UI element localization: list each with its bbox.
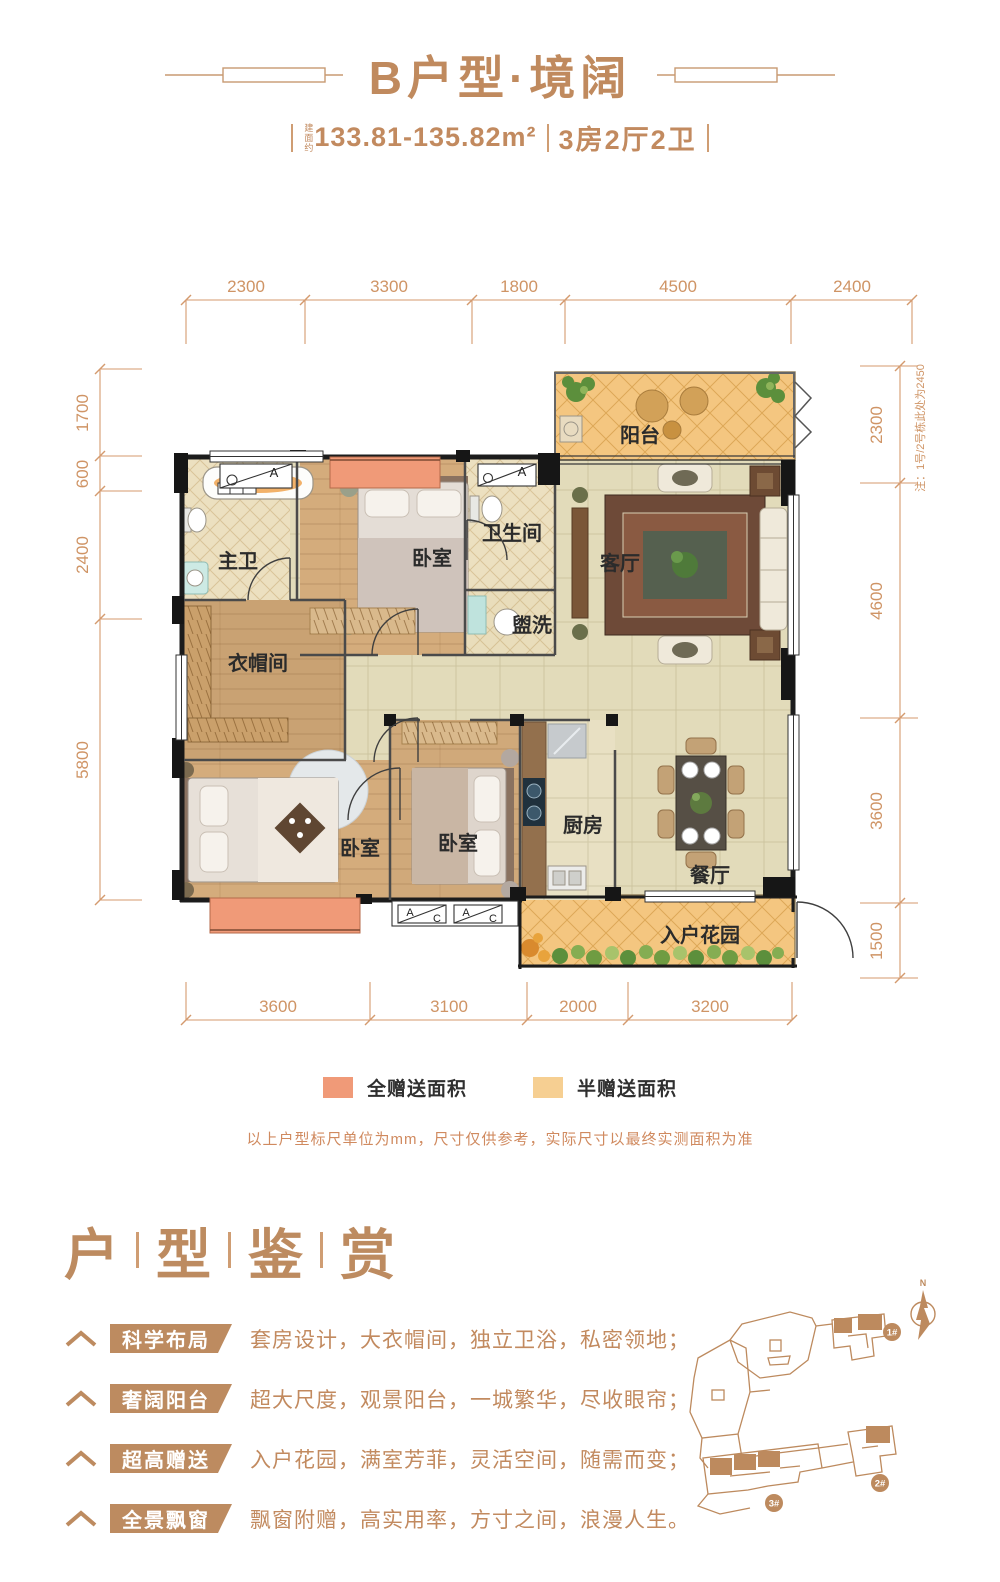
label-bedroom-mid: 卧室 bbox=[438, 831, 478, 855]
marker-letter-c: C bbox=[433, 913, 441, 925]
title-ornament-left bbox=[165, 63, 345, 87]
section-char: 赏 bbox=[340, 1210, 395, 1290]
half-gift-swatch bbox=[533, 1077, 563, 1098]
half-gift-label: 半赠送面积 bbox=[577, 1074, 677, 1101]
subtitle-divider bbox=[547, 124, 549, 152]
label-dining: 餐厅 bbox=[690, 863, 730, 887]
side-note: 注：1号/2号栋此处为2450 bbox=[913, 364, 927, 492]
feature-row: 全景飘窗 飘窗附赠，高实用率，方寸之间，浪漫人生。 bbox=[64, 1504, 690, 1533]
label-garden: 入户花园 bbox=[660, 923, 740, 947]
dim-bottom-2: 3100 bbox=[430, 997, 468, 1016]
section-separator bbox=[320, 1232, 323, 1268]
label-kitchen: 厨房 bbox=[563, 813, 603, 837]
dim-top-4: 4500 bbox=[659, 277, 697, 296]
chevron-up-icon bbox=[64, 1390, 98, 1408]
feature-row: 科学布局 套房设计，大衣帽间，独立卫浴，私密领地； bbox=[64, 1324, 690, 1353]
dim-bottom-4: 3200 bbox=[691, 997, 729, 1016]
bay-window-bottom bbox=[210, 898, 360, 933]
area-prefix: 建面约 bbox=[303, 123, 312, 153]
chevron-up-icon bbox=[64, 1450, 98, 1468]
label-bedroom-top: 卧室 bbox=[412, 546, 452, 570]
legend: 全赠送面积 半赠送面积 bbox=[0, 1074, 1000, 1101]
marker-letter-a: A bbox=[406, 907, 414, 919]
dim-right-4: 1500 bbox=[867, 922, 886, 960]
bay-window-top bbox=[330, 457, 440, 488]
feature-desc: 入户花园，满室芳菲，灵活空间，随需而变； bbox=[250, 1444, 690, 1474]
floor-plan: 2300 3300 1800 4500 2400 1700 600 2400 5… bbox=[60, 270, 940, 1070]
label-wash: 盥洗 bbox=[512, 613, 552, 637]
compass-icon: N bbox=[911, 1278, 935, 1340]
dim-top-1: 2300 bbox=[227, 277, 265, 296]
section-char: 鉴 bbox=[248, 1210, 303, 1290]
badge-2: 2# bbox=[875, 1479, 886, 1490]
feature-tag: 奢阔阳台 bbox=[110, 1384, 232, 1413]
area-value: 133.81-135.82m² bbox=[314, 122, 536, 153]
chevron-up-icon bbox=[64, 1510, 98, 1528]
dim-right-2: 4600 bbox=[867, 582, 886, 620]
site-plan: N 1# 2# 3# bbox=[650, 1262, 1000, 1572]
dim-top-5: 2400 bbox=[833, 277, 871, 296]
feature-tag: 超高赠送 bbox=[110, 1444, 232, 1473]
feature-tag: 科学布局 bbox=[110, 1324, 232, 1353]
feature-desc: 超大尺度，观景阳台，一城繁华，尽收眼帘； bbox=[250, 1384, 690, 1414]
marker-letter-a: A bbox=[518, 464, 527, 479]
section-separator bbox=[136, 1232, 139, 1268]
section-char: 户 bbox=[64, 1210, 119, 1290]
feature-row: 奢阔阳台 超大尺度，观景阳台，一城繁华，尽收眼帘； bbox=[64, 1384, 690, 1413]
site-outlines bbox=[690, 1312, 896, 1514]
marker-letter-c: C bbox=[489, 913, 497, 925]
dim-left-2: 600 bbox=[73, 460, 92, 488]
full-gift-swatch bbox=[323, 1077, 353, 1098]
feature-desc: 飘窗附赠，高实用率，方寸之间，浪漫人生。 bbox=[250, 1504, 690, 1534]
feature-desc: 套房设计，大衣帽间，独立卫浴，私密领地； bbox=[250, 1324, 690, 1354]
compass-north-label: N bbox=[920, 1278, 927, 1288]
badge-1: 1# bbox=[887, 1328, 898, 1339]
label-master-bath: 主卫 bbox=[218, 549, 258, 573]
label-bathroom: 卫生间 bbox=[482, 522, 542, 545]
title-ornament-right bbox=[655, 63, 835, 87]
legend-item-half-gift: 半赠送面积 bbox=[533, 1074, 677, 1101]
chevron-up-icon bbox=[64, 1330, 98, 1348]
section-char: 型 bbox=[156, 1210, 211, 1290]
subtitle-divider bbox=[291, 124, 293, 152]
feature-list: 科学布局 套房设计，大衣帽间，独立卫浴，私密领地； 奢阔阳台 超大尺度，观景阳台… bbox=[64, 1324, 690, 1533]
dim-left-1: 1700 bbox=[73, 394, 92, 432]
page-title: B户型·境阔 bbox=[369, 42, 632, 108]
dim-left-3: 2400 bbox=[73, 536, 92, 574]
marker-letter-a: A bbox=[462, 907, 470, 919]
dim-top-3: 1800 bbox=[500, 277, 538, 296]
section-title: 户 型 鉴 赏 bbox=[64, 1210, 395, 1290]
label-cloakroom: 衣帽间 bbox=[228, 651, 288, 675]
dim-left-4: 5800 bbox=[73, 741, 92, 779]
full-gift-label: 全赠送面积 bbox=[367, 1074, 467, 1101]
feature-row: 超高赠送 入户花园，满室芳菲，灵活空间，随需而变； bbox=[64, 1444, 690, 1473]
dim-bottom-1: 3600 bbox=[259, 997, 297, 1016]
subtitle-divider bbox=[707, 124, 709, 152]
label-bedroom-left: 卧室 bbox=[340, 836, 380, 860]
area-subtitle: 建面约 133.81-135.82m² 3房2厅2卫 bbox=[0, 118, 1000, 157]
section-separator bbox=[228, 1232, 231, 1268]
label-balcony: 阳台 bbox=[620, 423, 660, 447]
dim-right-1: 2300 bbox=[867, 406, 886, 444]
badge-3: 3# bbox=[769, 1499, 780, 1510]
legend-item-full-gift: 全赠送面积 bbox=[323, 1074, 467, 1101]
rooms-spec: 3房2厅2卫 bbox=[559, 118, 697, 157]
feature-tag: 全景飘窗 bbox=[110, 1504, 232, 1533]
dim-right-3: 3600 bbox=[867, 792, 886, 830]
dim-top-2: 3300 bbox=[370, 277, 408, 296]
plan-disclaimer: 以上户型标尺单位为mm，尺寸仅供参考，实际尺寸以最终实测面积为准 bbox=[0, 1128, 1000, 1149]
page-header: B户型·境阔 bbox=[0, 42, 1000, 108]
marker-letter-a: A bbox=[270, 465, 279, 480]
label-living: 客厅 bbox=[599, 551, 640, 575]
dim-bottom-3: 2000 bbox=[559, 997, 597, 1016]
